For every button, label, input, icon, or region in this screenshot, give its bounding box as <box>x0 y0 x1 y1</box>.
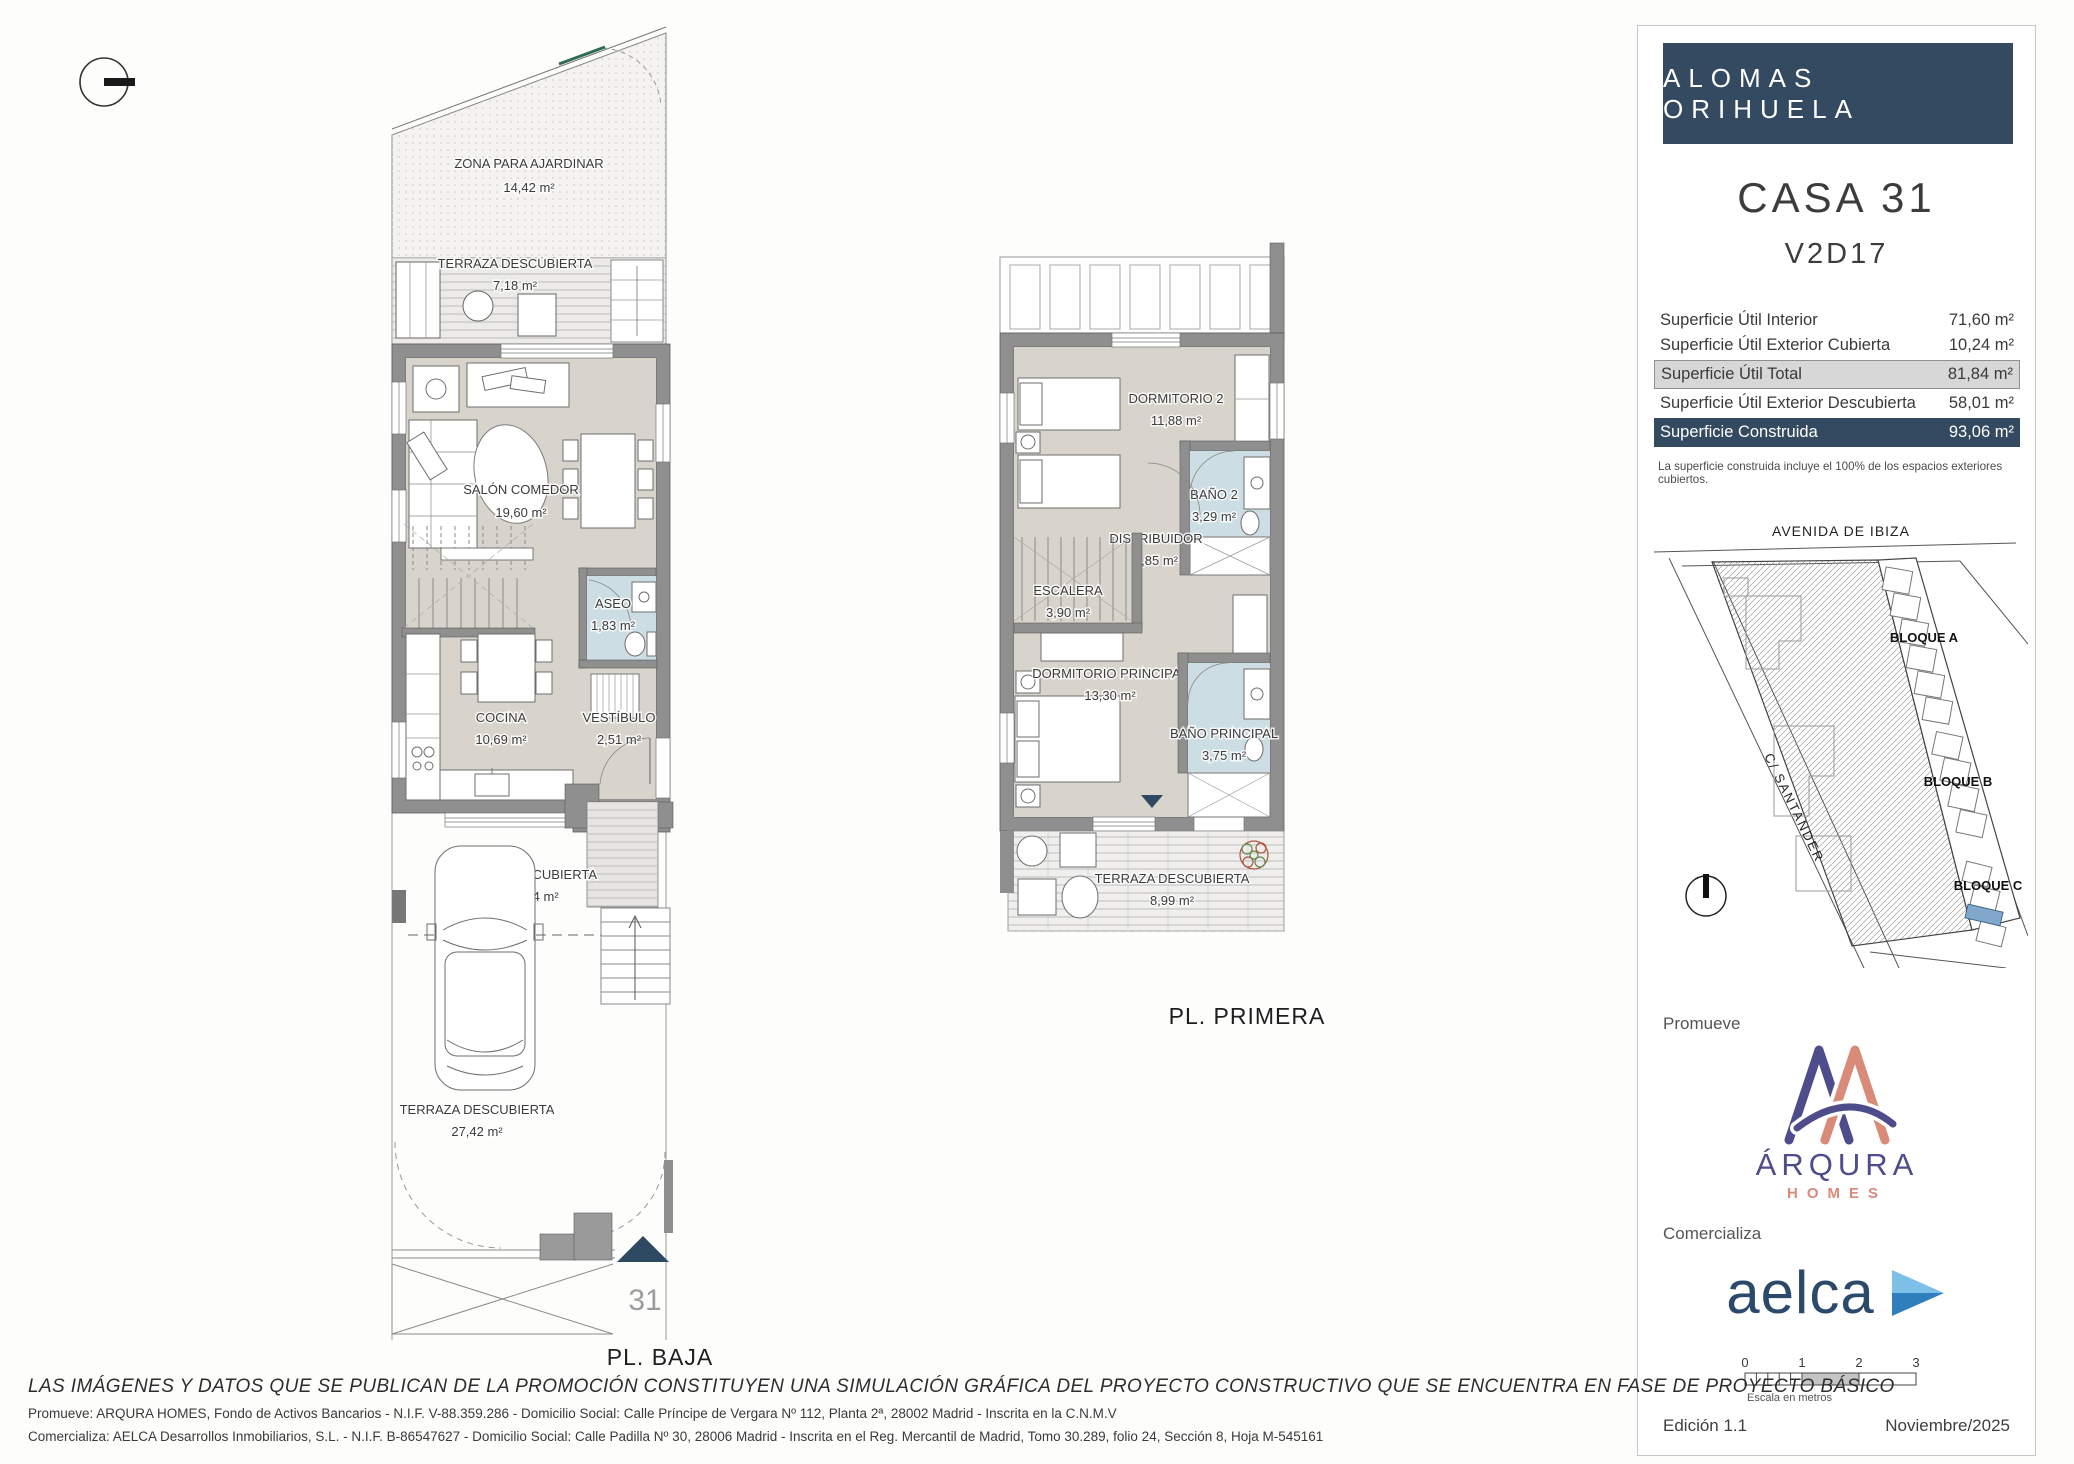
garden-zone <box>392 27 666 258</box>
surface-value: 93,06 m² <box>1949 423 2014 442</box>
scale-tick: 0 <box>1741 1356 1748 1370</box>
location-map: AVENIDA DE IBIZA <box>1646 516 2028 968</box>
unit-code: V2D17 <box>1638 238 2035 271</box>
block-b-label: BLOQUE B <box>1924 774 1993 789</box>
svg-text:14,42 m²: 14,42 m² <box>503 180 555 195</box>
unit-marker-triangle <box>617 1236 669 1262</box>
surface-row: Superficie Útil Interior 71,60 m² <box>1656 308 2018 333</box>
comercializa-label: Comercializa <box>1663 1224 1761 1244</box>
floor-plan-baja: ZONA PARA AJARDINAR 14,42 m² TERRAZA DES… <box>383 22 679 1344</box>
svg-text:3,29 m²: 3,29 m² <box>1192 509 1237 524</box>
date: Noviembre/2025 <box>1885 1416 2010 1436</box>
unit-title: CASA 31 <box>1638 174 2035 222</box>
info-panel: ALOMAS ORIHUELA CASA 31 V2D17 Superficie… <box>1637 25 2036 1456</box>
svg-text:ZONA PARA AJARDINAR: ZONA PARA AJARDINAR <box>454 156 603 171</box>
wall-segment <box>574 1213 612 1260</box>
surface-value: 58,01 m² <box>1949 394 2014 413</box>
plan-sheet: ZONA PARA AJARDINAR 14,42 m² TERRAZA DES… <box>0 0 2074 1464</box>
svg-text:BAÑO 2: BAÑO 2 <box>1190 487 1238 502</box>
svg-text:COCINA: COCINA <box>476 710 527 725</box>
pillar <box>1000 831 1014 893</box>
surface-label: Superficie Útil Exterior Cubierta <box>1660 336 1890 355</box>
svg-text:11,88 m²: 11,88 m² <box>1151 413 1202 428</box>
entry-platform <box>565 784 673 907</box>
svg-text:DORMITORIO 2: DORMITORIO 2 <box>1128 391 1223 406</box>
wall-segment <box>664 1160 673 1233</box>
pergola <box>1000 257 1284 333</box>
block-c-label: BLOQUE C <box>1954 878 2023 893</box>
gates-dashed <box>395 1142 665 1248</box>
surface-row: Superficie Útil Exterior Cubierta 10,24 … <box>1656 333 2018 358</box>
scale-tick: 2 <box>1855 1356 1862 1370</box>
bathroom2 <box>1180 441 1270 575</box>
wall-segment <box>540 1234 576 1260</box>
map-north-arrow-icon <box>1686 874 1726 916</box>
surfaces-table: Superficie Útil Interior 71,60 m² Superf… <box>1656 308 2018 449</box>
svg-text:TERRAZA DESCUBIERTA: TERRAZA DESCUBIERTA <box>1095 871 1250 886</box>
pillar <box>392 890 406 923</box>
edition: Edición 1.1 <box>1663 1416 1747 1436</box>
wall-segment <box>1270 243 1284 340</box>
svg-text:8,99 m²: 8,99 m² <box>1150 893 1195 908</box>
footer-comercializa: Comercializa: AELCA Desarrollos Inmobili… <box>28 1429 1588 1444</box>
surface-label: Superficie Útil Total <box>1661 365 1802 384</box>
arqura-name: ÁRQURA <box>1756 1147 1919 1182</box>
plot-bottom <box>392 1250 615 1334</box>
svg-text:3,75 m²: 3,75 m² <box>1202 748 1247 763</box>
unit-number: 31 <box>628 1284 661 1317</box>
surface-row-construida: Superficie Construida 93,06 m² <box>1654 418 2020 447</box>
surface-label: Superficie Útil Interior <box>1660 311 1818 330</box>
footer-promueve: Promueve: ARQURA HOMES, Fondo de Activos… <box>28 1406 1588 1421</box>
svg-text:2,51 m²: 2,51 m² <box>597 732 642 747</box>
svg-text:ESCALERA: ESCALERA <box>1033 583 1103 598</box>
scale-tick: 1 <box>1798 1356 1805 1370</box>
surface-row-total: Superficie Útil Total 81,84 m² <box>1654 360 2020 389</box>
footer: LAS IMÁGENES Y DATOS QUE SE PUBLICAN DE … <box>28 1376 1588 1444</box>
svg-text:19,60 m²: 19,60 m² <box>495 505 547 520</box>
svg-text:1,83 m²: 1,83 m² <box>591 618 636 633</box>
surface-row: Superficie Útil Exterior Descubierta 58,… <box>1656 391 2018 416</box>
north-arrow-icon <box>70 48 142 120</box>
scale-tick: 3 <box>1912 1356 1919 1370</box>
plan-label-primera: PL. PRIMERA <box>1147 1003 1347 1030</box>
surface-value: 81,84 m² <box>1948 365 2013 384</box>
svg-text:13,30 m²: 13,30 m² <box>1084 688 1136 703</box>
surfaces-note: La superficie construida incluye el 100%… <box>1658 460 2018 486</box>
street-label-avenida: AVENIDA DE IBIZA <box>1772 523 1910 539</box>
svg-text:3,90 m²: 3,90 m² <box>1046 605 1091 620</box>
exterior-stairs <box>601 908 670 1004</box>
svg-text:DORMITORIO PRINCIPAL: DORMITORIO PRINCIPAL <box>1032 666 1188 681</box>
plan-label-baja: PL. BAJA <box>560 1344 760 1371</box>
svg-text:BAÑO PRINCIPAL: BAÑO PRINCIPAL <box>1170 726 1278 741</box>
aelca-logo: aelca <box>1638 1258 2035 1327</box>
surface-label: Superficie Útil Exterior Descubierta <box>1660 394 1916 413</box>
surface-label: Superficie Construida <box>1660 423 1818 442</box>
arqura-homes-logo: ÁRQURA HOMES <box>1727 1028 1947 1203</box>
block-a-label: BLOQUE A <box>1890 630 1959 645</box>
svg-text:ASEO: ASEO <box>595 596 631 611</box>
svg-text:7,18 m²: 7,18 m² <box>493 278 538 293</box>
svg-text:TERRAZA DESCUBIERTA: TERRAZA DESCUBIERTA <box>400 1102 555 1117</box>
surface-value: 71,60 m² <box>1949 311 2014 330</box>
surface-value: 10,24 m² <box>1949 336 2014 355</box>
svg-text:DISTRIBUIDOR: DISTRIBUIDOR <box>1109 531 1202 546</box>
svg-text:TERRAZA DESCUBIERTA: TERRAZA DESCUBIERTA <box>438 256 593 271</box>
svg-text:27,42 m²: 27,42 m² <box>451 1124 503 1139</box>
car <box>427 846 543 1090</box>
aelca-name: aelca <box>1726 1258 1874 1327</box>
svg-text:10,69 m²: 10,69 m² <box>475 732 527 747</box>
floor-plan-primera: DORMITORIO 2 11,88 m² BAÑO 2 3,29 m² DIS… <box>998 233 1290 945</box>
room-label-terraza-inf: TERRAZA DESCUBIERTA 27,42 m² <box>400 1102 555 1139</box>
footer-disclaimer: LAS IMÁGENES Y DATOS QUE SE PUBLICAN DE … <box>28 1376 1588 1398</box>
svg-text:SALÓN COMEDOR: SALÓN COMEDOR <box>463 482 579 497</box>
aelca-triangle-icon <box>1889 1266 1947 1320</box>
svg-text:VESTÍBULO: VESTÍBULO <box>583 710 656 725</box>
project-title: ALOMAS ORIHUELA <box>1663 43 2013 144</box>
arqura-sub: HOMES <box>1787 1185 1887 1202</box>
